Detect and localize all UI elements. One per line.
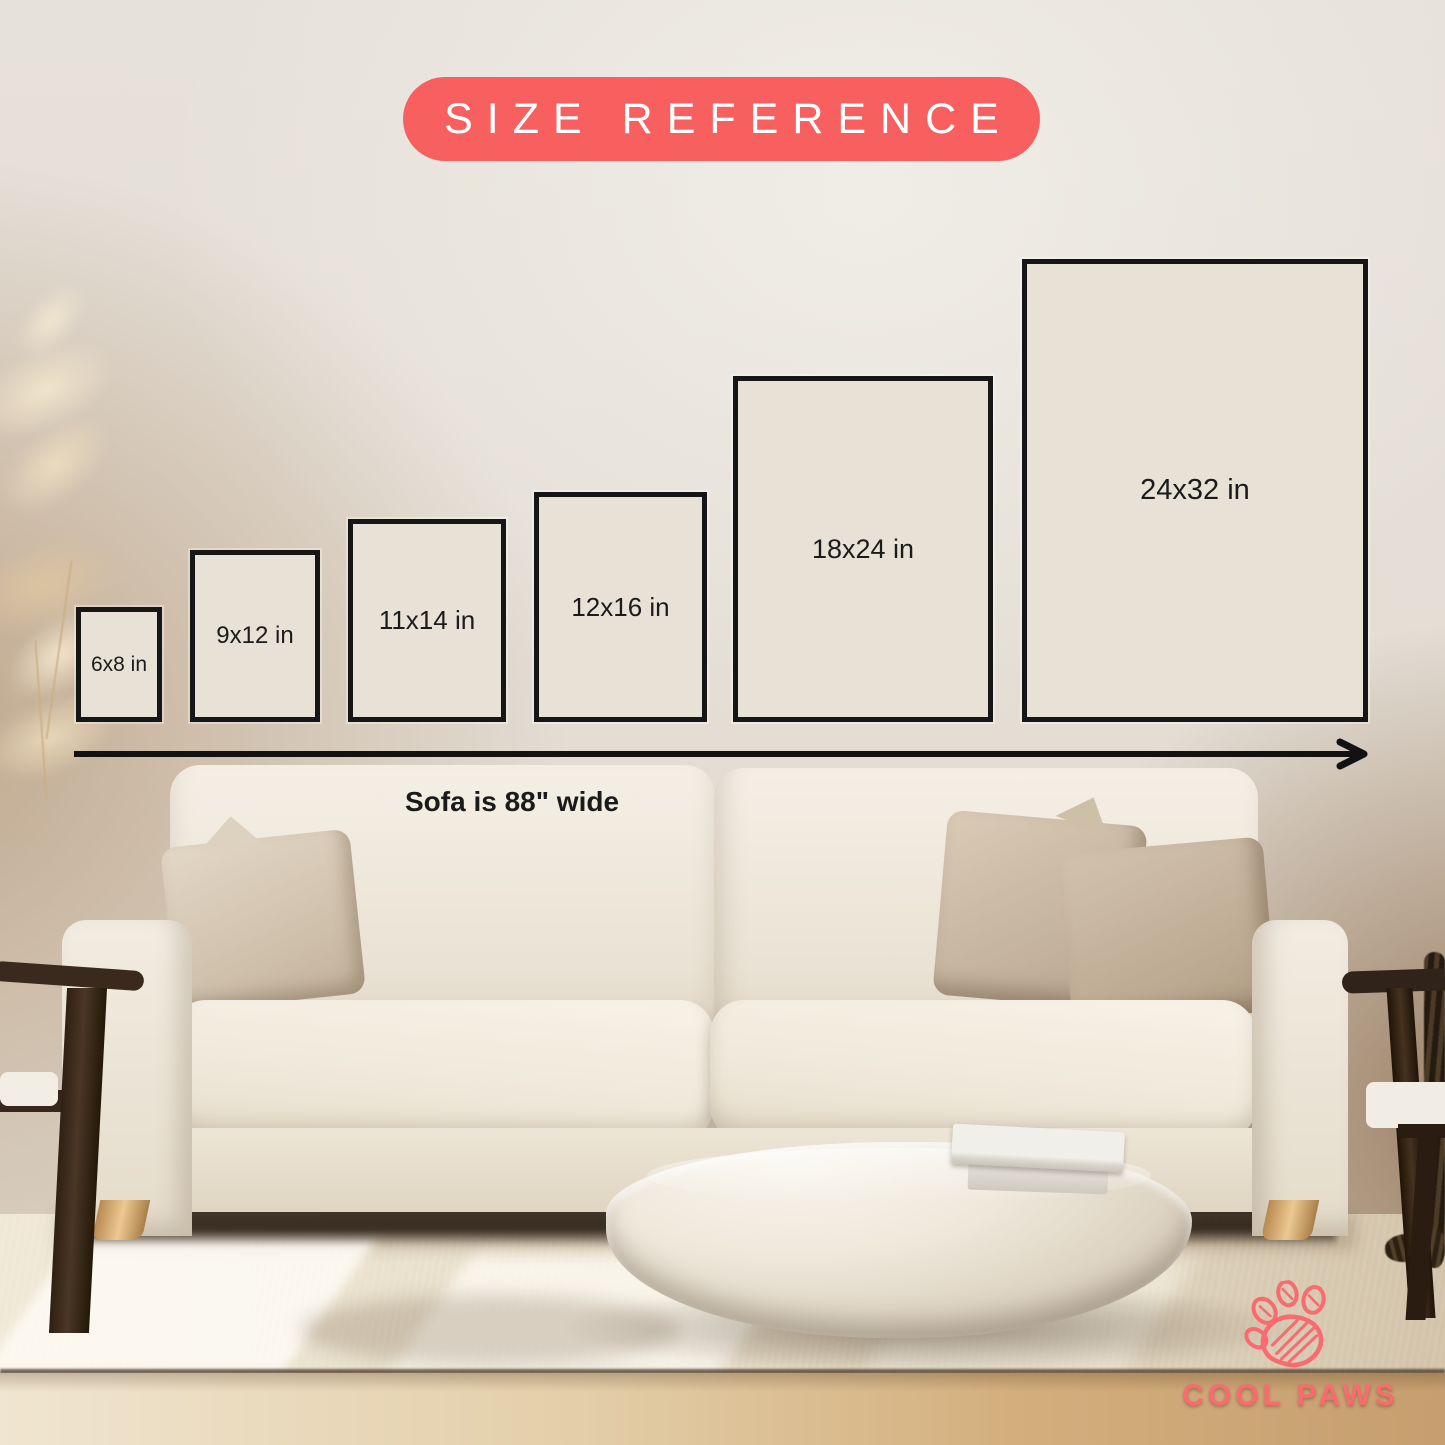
poster-size-24x32: 24x32 in	[1022, 259, 1368, 722]
sofa-seat-cushion-left	[172, 1000, 714, 1140]
sofa-width-note: Sofa is 88" wide	[405, 786, 619, 818]
poster-size-label: 18x24 in	[812, 534, 914, 565]
poster-size-11x14: 11x14 in	[348, 519, 506, 722]
brand-name: COOL PAWS	[1148, 1379, 1433, 1413]
sofa-armrest-right	[1252, 920, 1348, 1236]
poster-size-label: 24x32 in	[1140, 474, 1250, 507]
right-chair-cushion	[1366, 1082, 1445, 1128]
size-reference-graphic: SIZE REFERENCE 6x8 in 9x12 in 11x14 in 1…	[0, 0, 1445, 1445]
paw-print-icon	[1237, 1273, 1349, 1378]
poster-size-label: 6x8 in	[91, 653, 147, 677]
poster-size-label: 11x14 in	[379, 605, 475, 636]
poster-size-9x12: 9x12 in	[190, 550, 320, 722]
poster-size-label: 12x16 in	[571, 592, 669, 623]
poster-size-18x24: 18x24 in	[733, 376, 993, 722]
sofa-seat-cushion-right	[710, 1000, 1256, 1140]
title-badge: SIZE REFERENCE	[403, 77, 1040, 161]
right-arrow-icon	[68, 738, 1378, 770]
sofa-leg	[1261, 1200, 1320, 1240]
poster-size-label: 9x12 in	[216, 622, 293, 650]
poster-size-12x16: 12x16 in	[534, 492, 707, 722]
left-chair-cushion	[0, 1072, 58, 1106]
sofa-leg	[92, 1200, 151, 1240]
title-badge-label: SIZE REFERENCE	[430, 95, 1013, 144]
poster-size-6x8: 6x8 in	[76, 607, 162, 722]
